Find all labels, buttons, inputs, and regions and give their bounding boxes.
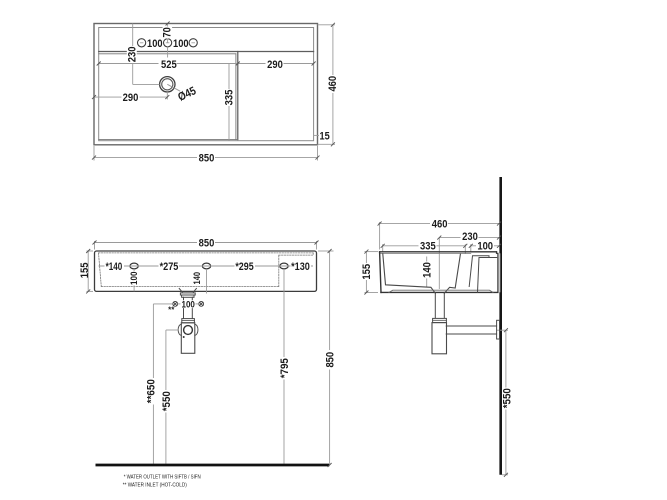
svg-text:70: 70 [162, 27, 174, 37]
svg-text:140: 140 [192, 272, 202, 285]
svg-text:850: 850 [325, 352, 337, 368]
svg-text:525: 525 [161, 59, 177, 71]
svg-text:230: 230 [462, 231, 478, 243]
svg-text:*275: *275 [160, 261, 179, 273]
svg-text:460: 460 [432, 218, 448, 230]
svg-text:335: 335 [420, 241, 436, 253]
svg-text:*550: *550 [161, 391, 173, 411]
svg-text:**650: **650 [146, 379, 158, 403]
svg-text:290: 290 [267, 59, 283, 71]
svg-text:100: 100 [477, 241, 493, 253]
svg-text:**: ** [168, 306, 175, 315]
svg-text:290: 290 [123, 92, 139, 104]
svg-text:230: 230 [127, 47, 139, 63]
svg-text:* WATER OUTLET WITH SIFTB / S: * WATER OUTLET WITH SIFTB / SIFN [124, 474, 201, 480]
svg-text:100: 100 [129, 271, 139, 285]
svg-text:850: 850 [199, 237, 215, 249]
svg-text:155: 155 [361, 264, 373, 280]
svg-text:155: 155 [79, 263, 91, 279]
svg-text:** WATER INLET (HOT-COLD): ** WATER INLET (HOT-COLD) [123, 482, 187, 488]
svg-text:335: 335 [224, 90, 236, 106]
svg-text:*550: *550 [502, 388, 514, 408]
svg-text:*140: *140 [106, 261, 123, 273]
svg-text:*130: *130 [291, 261, 310, 273]
svg-text:*295: *295 [235, 261, 253, 273]
svg-text:100: 100 [182, 299, 195, 309]
svg-text:100: 100 [147, 38, 163, 50]
svg-text:100: 100 [173, 38, 189, 50]
svg-text:*795: *795 [279, 358, 291, 378]
svg-text:15: 15 [320, 130, 330, 142]
svg-text:850: 850 [199, 153, 215, 165]
svg-text:460: 460 [327, 76, 339, 92]
svg-text:140: 140 [422, 262, 434, 278]
